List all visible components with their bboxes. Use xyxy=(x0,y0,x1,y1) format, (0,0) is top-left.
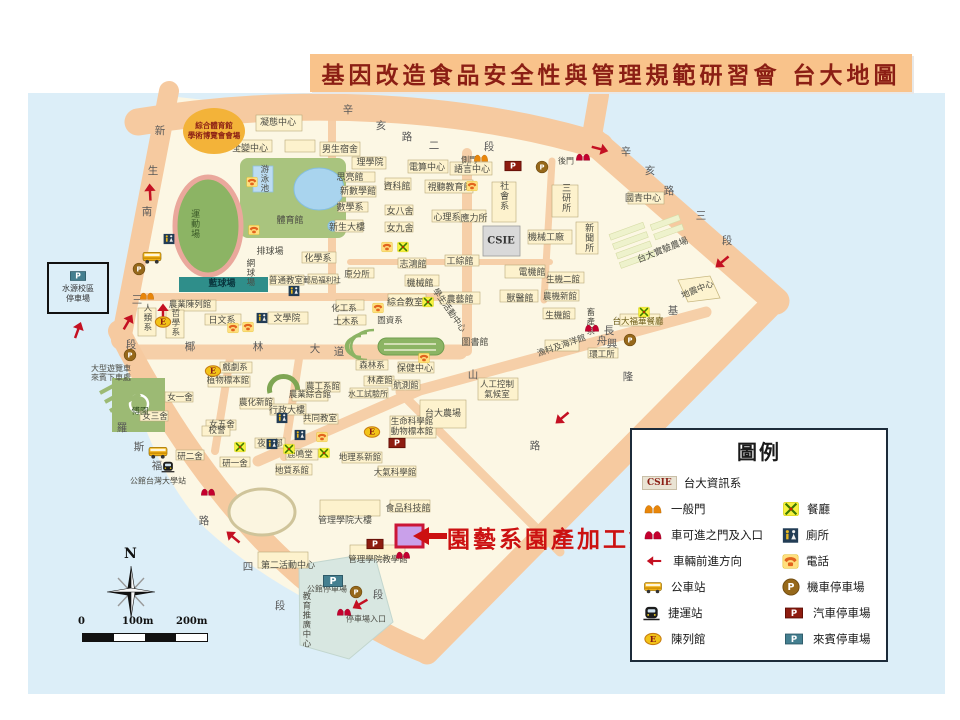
toilet-icon xyxy=(266,438,278,450)
car-parking-icon xyxy=(389,435,406,452)
street-name-char: 辛 xyxy=(621,146,632,158)
street-name-char: 羅 xyxy=(117,422,128,434)
phone-icon xyxy=(418,352,430,364)
csie-building-label: CSIE xyxy=(487,236,514,247)
map-label: 新生大樓 xyxy=(329,223,365,233)
map-label: 圖書館 xyxy=(461,338,488,348)
compass-north-label: N xyxy=(124,546,137,562)
map-label: 女三舍 xyxy=(142,413,168,423)
map-label: 大型遊覽車 來賓下車處 xyxy=(91,364,131,382)
bus-stop-icon xyxy=(642,578,664,596)
street-name-char: 基 xyxy=(668,305,679,317)
motorcycle-parking-icon xyxy=(782,578,800,596)
vehicle-gate-icon xyxy=(201,485,216,500)
map-label: 校警 xyxy=(208,427,225,437)
map-label: 國青中心 xyxy=(625,194,661,204)
map-label: 郵局福利社 xyxy=(303,277,341,286)
map-label: 共同教室 xyxy=(303,415,337,425)
phone-icon xyxy=(466,180,478,192)
general-gate-icon xyxy=(474,151,489,166)
csie-chip: CSIE xyxy=(642,476,677,490)
map-label: 思亮館 xyxy=(336,173,363,183)
mrt-station-icon xyxy=(642,604,661,623)
street-name-char: 路 xyxy=(530,440,541,452)
vehicle-gate-icon xyxy=(585,321,600,336)
direction-arrow-icon xyxy=(140,182,160,202)
general-gate-icon xyxy=(642,500,664,518)
map-label: 游泳池 xyxy=(258,165,268,194)
street-name-char: 路 xyxy=(664,185,675,197)
guest-parking-icon xyxy=(782,630,806,648)
phone-icon xyxy=(372,302,384,314)
phone-icon xyxy=(246,176,258,188)
map-label: 研二舍 xyxy=(177,453,203,463)
street-name-char: 山 xyxy=(468,369,479,381)
map-label: 第二活動中心 xyxy=(261,561,315,571)
legend-title: 圖例 xyxy=(642,436,876,465)
toilet-icon xyxy=(256,312,268,324)
direction-arrow-icon xyxy=(220,524,247,551)
legend-row: 車輛前進方向 電話 xyxy=(642,548,876,574)
legend-box: 圖例 CSIE 台大資訊系 一般門 餐廳 車可進之門及入口 廁所 車輛前進方向 … xyxy=(630,428,888,662)
phone-icon xyxy=(242,321,254,333)
map-label: 土木系 xyxy=(333,318,359,328)
map-label: 化學系 xyxy=(304,254,331,264)
map-label: 文學院 xyxy=(273,314,300,324)
map-label: 理學院 xyxy=(356,158,383,168)
map-label: 新聞所 xyxy=(583,223,593,253)
phone-icon xyxy=(248,224,260,236)
street-name-char: 段 xyxy=(275,600,286,612)
legend-row: 車可進之門及入口 廁所 xyxy=(642,522,876,548)
direction-arrow-icon xyxy=(588,137,611,160)
street-name-char: 路 xyxy=(199,515,210,527)
map-label: 語言中心 xyxy=(454,165,490,175)
map-label: 農工系館 xyxy=(306,383,340,393)
map-label: 機械工廠 xyxy=(528,233,564,243)
map-label: 大氣科學館 xyxy=(374,469,417,479)
street-name-char: 生 xyxy=(148,165,159,177)
map-label: 男生宿舍 xyxy=(322,145,358,155)
direction-arrow-icon xyxy=(66,318,90,342)
phone-icon xyxy=(782,553,799,570)
map-label: 保健中心 xyxy=(397,364,433,374)
map-label: 志鴻館 xyxy=(399,260,426,270)
map-label: 藍球場 xyxy=(208,279,235,289)
map-label: 後門 xyxy=(558,156,574,165)
street-name-char: 大 xyxy=(310,343,321,355)
map-label: 電機館 xyxy=(518,268,545,278)
street-name-char: 新 xyxy=(155,125,166,137)
restaurant-icon xyxy=(782,500,800,518)
map-label: 研一舍 xyxy=(222,460,248,470)
map-label: 女一舍 xyxy=(167,394,193,404)
street-name-char: 亥 xyxy=(376,120,387,132)
restaurant-icon xyxy=(283,443,296,456)
toilet-icon xyxy=(288,285,300,297)
map-label: 新數學館 xyxy=(340,187,376,197)
car-parking-icon xyxy=(782,604,806,622)
motorcycle-parking-icon xyxy=(536,161,549,174)
restaurant-icon xyxy=(422,296,435,309)
map-label: 獸醫館 xyxy=(506,294,533,304)
map-label: 航測館 xyxy=(393,382,419,392)
motorcycle-parking-icon xyxy=(624,334,637,347)
map-label: 水工試驗所 xyxy=(348,389,388,398)
map-label: 生機館 xyxy=(545,312,571,322)
exhibition-hall-icon xyxy=(642,630,664,648)
phone-icon xyxy=(227,322,239,334)
map-label: 機械館 xyxy=(406,279,433,289)
map-label: 女九舍 xyxy=(386,224,413,234)
map-label: 排球場 xyxy=(256,247,283,257)
phone-icon xyxy=(381,241,393,253)
direction-arrow-icon xyxy=(709,249,736,276)
map-label: 凝態中心 xyxy=(260,118,296,128)
highlight-callout-label: 園藝系園產加工館 xyxy=(447,520,655,554)
car-parking-icon xyxy=(505,158,522,175)
exhibition-hall-icon xyxy=(205,363,222,380)
map-label: 環工所 xyxy=(589,351,615,361)
street-name-char: 道 xyxy=(334,346,345,358)
map-label: 生機二館 xyxy=(546,276,580,286)
direction-arrow-icon xyxy=(642,553,666,569)
map-label: 管理學院大樓 xyxy=(318,516,372,526)
map-label: 數學系 xyxy=(336,203,363,213)
map-label: 資科館 xyxy=(383,182,410,192)
map-label: 戲劇系 xyxy=(222,364,248,374)
phone-icon xyxy=(316,431,328,443)
map-label: 公館台灣大學站 xyxy=(130,476,186,485)
map-label: 教育推廣中心 xyxy=(300,592,310,649)
guest-parking-icon xyxy=(65,268,91,284)
restaurant-icon xyxy=(234,441,247,454)
map-label: 森林系 xyxy=(359,362,385,372)
street-name-char: 段 xyxy=(373,589,384,601)
map-label: 原分所 xyxy=(344,271,370,281)
motorcycle-parking-icon xyxy=(124,349,137,362)
map-label: 化工系 xyxy=(331,305,357,315)
map-label: 人類系 xyxy=(141,304,151,333)
street-name-char: 椰 xyxy=(185,341,196,353)
map-label: 社會系 xyxy=(498,181,508,211)
toilet-icon xyxy=(276,412,288,424)
map-label: 電算中心 xyxy=(409,163,445,173)
car-parking-icon xyxy=(367,536,384,553)
map-label: 農化新館 xyxy=(239,399,273,409)
street-name-char: 二 xyxy=(429,140,440,152)
street-name-char: 斯 xyxy=(134,441,145,453)
street-name-char: 四 xyxy=(243,561,254,573)
map-label: 三研所 xyxy=(560,183,570,213)
general-gate-icon xyxy=(140,289,155,304)
direction-arrow-icon xyxy=(115,309,141,335)
map-label: 地質系館 xyxy=(275,467,309,477)
map-label: 台大實驗農場 xyxy=(636,236,690,266)
scale-bar: 0 100m 200m xyxy=(78,616,228,648)
shuiyuan-parking-box: 水源校區 停車場 xyxy=(47,262,109,314)
map-label: 台大福華餐廳 xyxy=(612,318,663,328)
map-label: 女八舍 xyxy=(386,207,413,217)
map-label: 食品科技館 xyxy=(385,504,430,514)
street-name-char: 林 xyxy=(253,341,264,353)
map-label: 運動場 xyxy=(189,209,199,239)
toilet-icon xyxy=(163,233,175,245)
street-name-char: 興 xyxy=(607,338,618,350)
street-name-char: 段 xyxy=(722,235,733,247)
ntu-campus-map-page: E P xyxy=(0,0,960,720)
map-label: 農機新館 xyxy=(543,293,577,303)
street-name-char: 辛 xyxy=(343,104,354,116)
restaurant-icon xyxy=(318,447,331,460)
street-name-char: 隆 xyxy=(623,371,634,383)
vehicle-gate-icon xyxy=(396,548,411,563)
sports-center-expo-badge: 綜合體育館 學術博覽會會場 xyxy=(183,108,245,154)
street-name-char: 南 xyxy=(142,206,153,218)
street-name-char: 三 xyxy=(696,210,707,222)
guest-parking-icon xyxy=(323,571,343,591)
legend-row: 捷運站 汽車停車場 xyxy=(642,600,876,626)
legend-row: 陳列館 來賓停車場 xyxy=(642,626,876,652)
map-label: 網球場 xyxy=(244,259,254,288)
direction-arrow-icon xyxy=(549,405,576,432)
map-label: 體育館 xyxy=(276,216,303,226)
map-label: 漁科及海洋館 xyxy=(536,334,587,360)
toilet-icon xyxy=(782,527,799,544)
legend-row: 一般門 餐廳 xyxy=(642,496,876,522)
map-label: 地震中心 xyxy=(680,280,715,302)
map-label: 工綜館 xyxy=(446,257,473,267)
scale-bar-segments xyxy=(82,633,208,642)
map-label: 圖資系 xyxy=(377,317,403,327)
map-label: 應力所 xyxy=(460,214,487,224)
mrt-station-icon xyxy=(161,460,176,475)
map-label: 綜合教室 xyxy=(387,298,423,308)
restaurant-icon xyxy=(638,306,651,319)
vehicle-gate-icon xyxy=(642,526,664,544)
map-label: 停車場入口 xyxy=(346,614,386,623)
exhibition-hall-icon xyxy=(364,424,381,441)
motorcycle-parking-icon xyxy=(133,263,146,276)
motorcycle-parking-icon xyxy=(350,586,363,599)
toilet-icon xyxy=(294,429,306,441)
street-name-char: 路 xyxy=(402,131,413,143)
map-label: 心理系 xyxy=(433,213,460,223)
map-label: 人工控制 氣候室 xyxy=(480,381,514,401)
compass-rose: N xyxy=(98,546,164,626)
legend-row: CSIE 台大資訊系 xyxy=(642,470,876,496)
map-label: 地理系新館 xyxy=(339,454,382,464)
street-name-char: 亥 xyxy=(645,165,656,177)
vehicle-gate-icon xyxy=(337,605,352,620)
legend-row: 公車站 機車停車場 xyxy=(642,574,876,600)
restaurant-icon xyxy=(397,241,410,254)
compass-star xyxy=(107,566,155,618)
map-label: 林產館 xyxy=(367,377,393,387)
exhibition-hall-icon xyxy=(155,314,172,331)
